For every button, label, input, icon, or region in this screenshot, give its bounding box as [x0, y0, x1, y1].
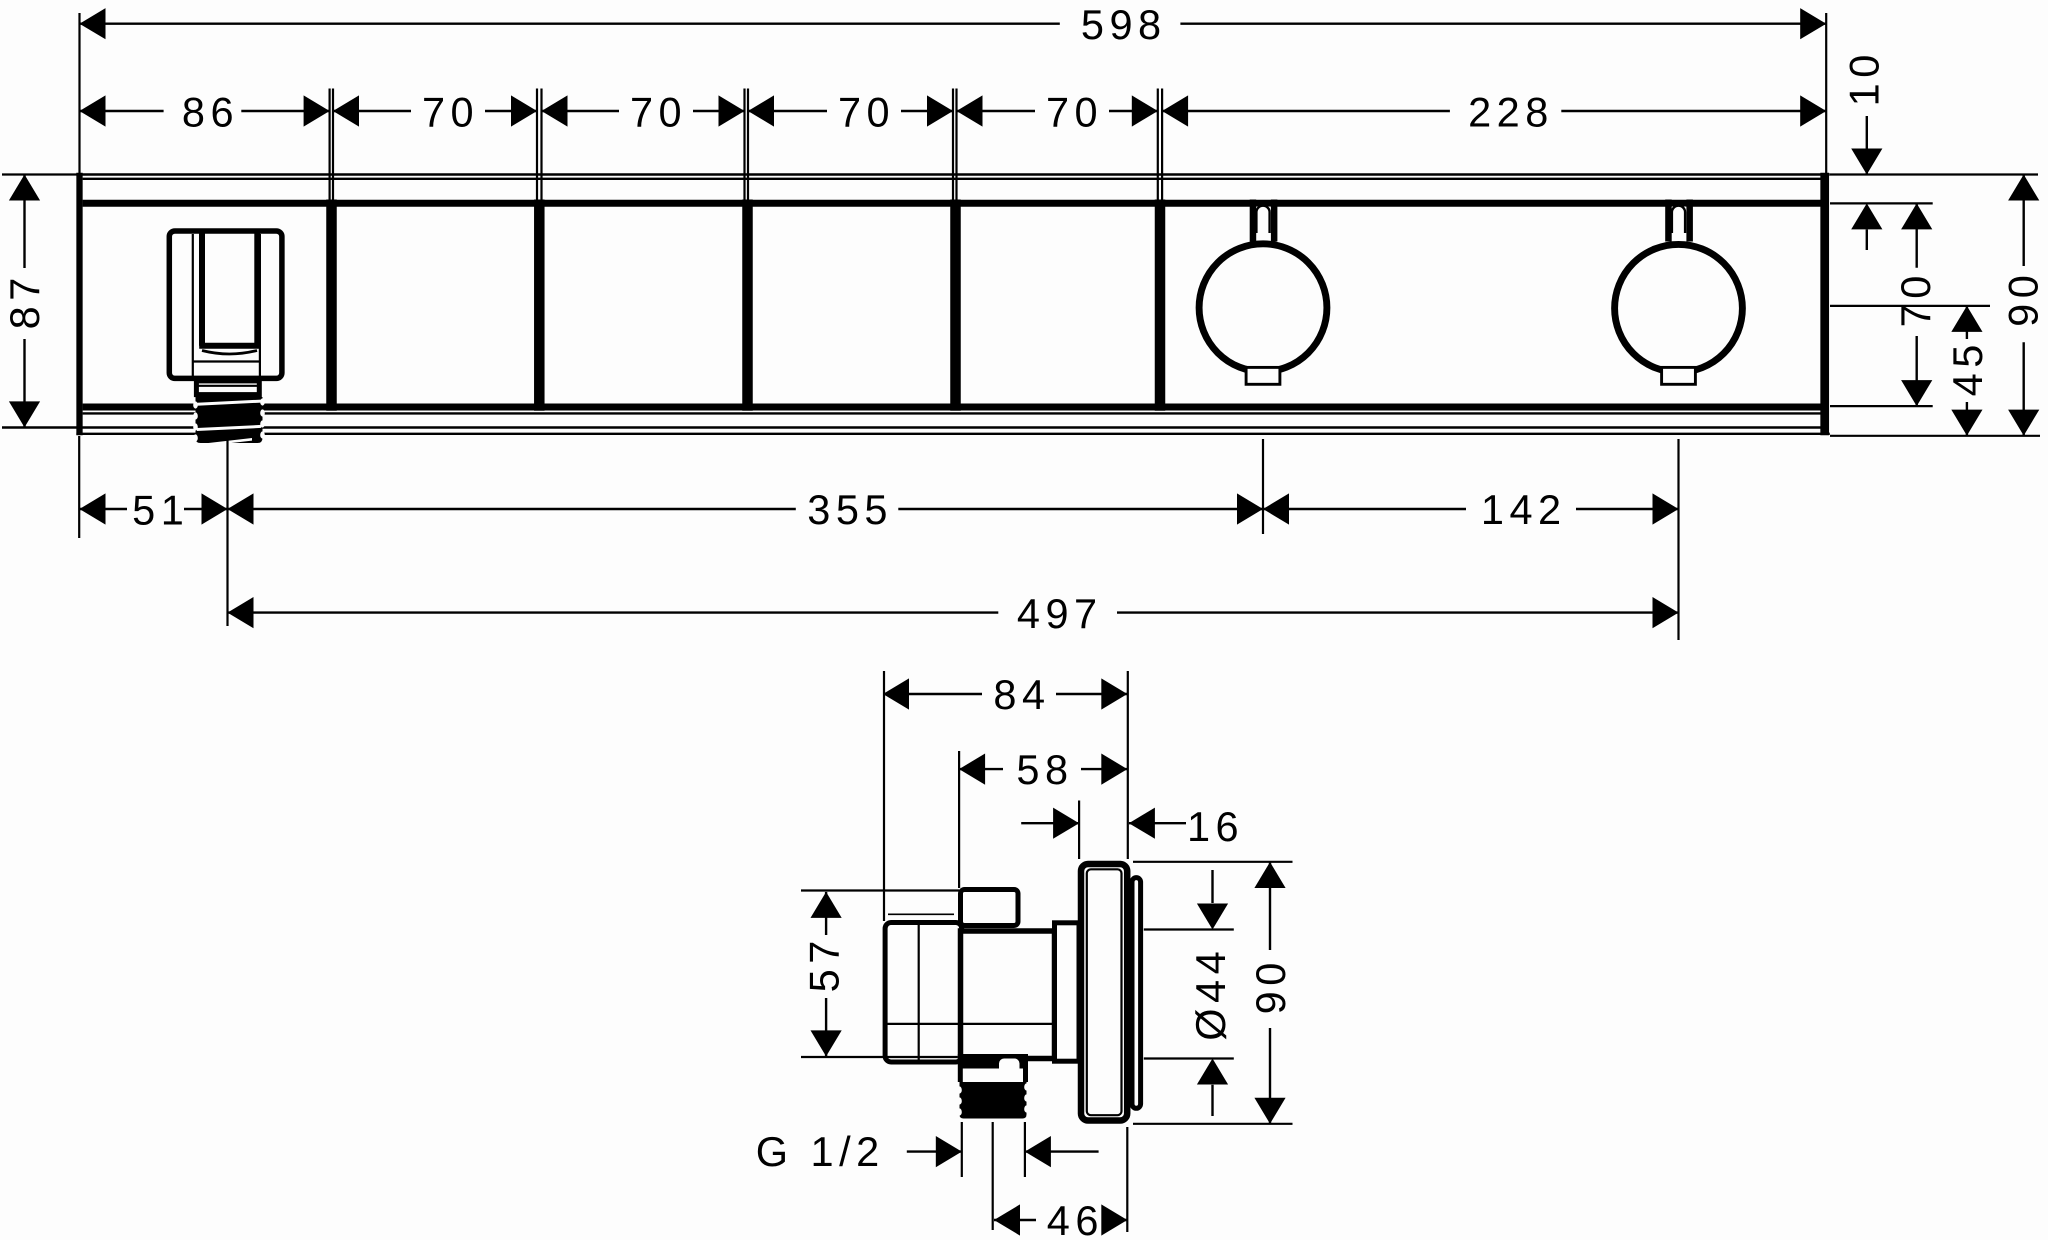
svg-text:355: 355	[807, 486, 893, 533]
svg-text:497: 497	[1017, 590, 1103, 637]
svg-text:90: 90	[1247, 957, 1294, 1014]
svg-text:45: 45	[1944, 339, 1991, 396]
svg-text:70: 70	[838, 88, 895, 135]
svg-text:70: 70	[1892, 270, 1939, 327]
svg-text:51: 51	[132, 486, 189, 533]
svg-text:70: 70	[630, 88, 687, 135]
svg-text:228: 228	[1468, 88, 1554, 135]
svg-text:16: 16	[1187, 803, 1244, 850]
svg-text:90: 90	[2000, 270, 2047, 327]
svg-text:87: 87	[1, 272, 48, 329]
svg-text:58: 58	[1016, 746, 1073, 793]
svg-text:142: 142	[1481, 486, 1567, 533]
svg-text:10: 10	[1840, 49, 1887, 106]
svg-text:70: 70	[422, 88, 479, 135]
svg-text:Ø44: Ø44	[1187, 946, 1234, 1041]
svg-text:G 1/2: G 1/2	[756, 1128, 885, 1175]
svg-text:86: 86	[182, 88, 239, 135]
svg-text:598: 598	[1081, 1, 1167, 48]
svg-text:84: 84	[993, 671, 1050, 718]
svg-text:70: 70	[1046, 88, 1103, 135]
svg-text:46: 46	[1047, 1197, 1104, 1240]
svg-text:57: 57	[801, 935, 848, 992]
